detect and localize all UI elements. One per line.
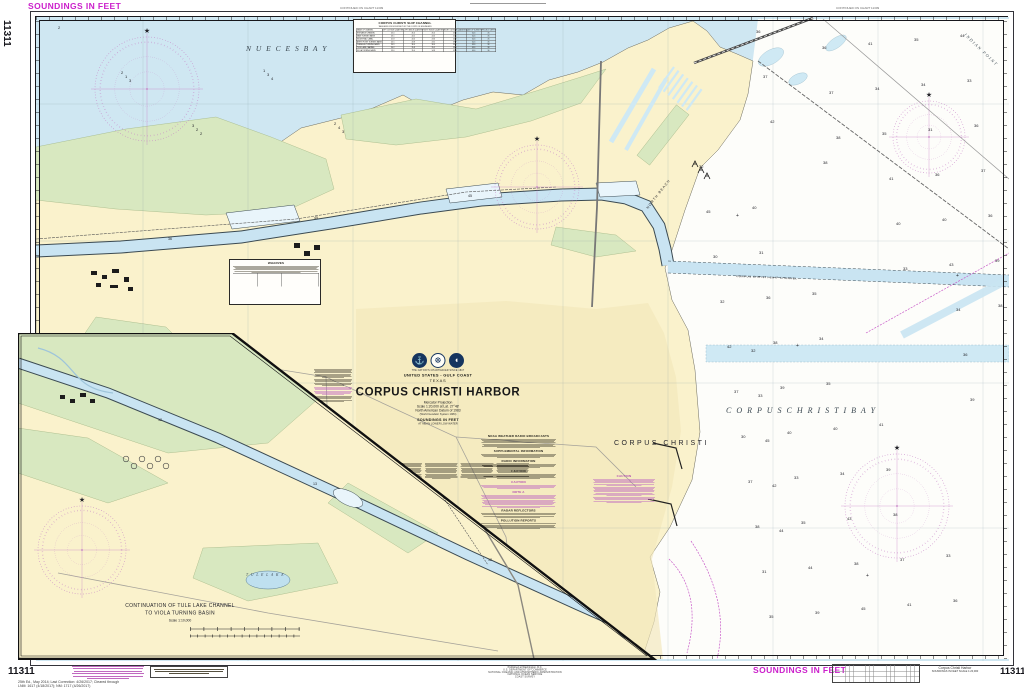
sounding-value: 33 [946,553,951,558]
sounding-value: 37 [829,90,834,95]
sounding-value: 36 [766,295,771,300]
sounding-value: 39 [886,467,891,472]
sounding-value: 44 [960,33,965,38]
sounding-value: 35 [801,520,806,525]
sounding-value: 35 [812,291,817,296]
tabulation-cell: VIOLA TURNING BASIN [356,49,382,52]
bottom-right-sub-line: SOUNDINGS IN FEET SCALE 1:20,000 [925,670,985,673]
sounding-value: 34 [840,471,845,476]
sounding-value: 31 [928,127,933,132]
svg-text:+: + [866,573,869,579]
inset-title-line1: CONTINUATION OF TULE LAKE CHANNEL [125,603,234,609]
chart-number-left-edge: 11311 [1,20,12,47]
wharves-table [233,273,319,287]
sounding-value: 41 [868,41,873,46]
nautical-chart-page: SOUNDINGS IN FEET 11311 CONTINUED ON CHA… [0,0,1024,690]
tule-lake-inset: ★ 121312 T U L E L A K E CONTINUATION OF… [18,333,658,660]
sounding-value: 12 [488,558,492,562]
sounding-value: 32 [699,164,704,169]
edition-line2: LNM: 1617 (4/18/2017); NM: 1717 (4/26/20… [18,684,154,688]
north-star-icon: ★ [894,444,900,452]
sounding-value: 30 [713,254,718,259]
sounding-value: 41 [879,422,884,427]
sounding-value: 38 [854,561,859,566]
sounding-value: 36 [988,213,993,218]
margin-magenta-note-text [72,666,144,679]
sounding-value: 38 [836,135,841,140]
wharves-title: WHARVES [233,262,319,265]
tabulation-subtitle: TABULATED FROM SURVEYS BY THE CORPS OF E… [356,26,454,28]
sounding-value: 35 [914,37,919,42]
sounding-value: 36 [935,172,940,177]
sounding-value: 39 [780,385,785,390]
chart-number-bottom-right: 11311 [1000,666,1024,677]
sounding-value: 39 [995,258,1000,263]
sounding-value: 31 [762,569,767,574]
north-star-icon: ★ [534,135,540,143]
tabulation-cell: 36 [481,49,496,52]
sounding-value: 34 [921,82,926,87]
sounding-value: 34 [875,86,880,91]
sounding-value: 37 [763,74,768,79]
sounding-value: 42 [770,119,775,124]
sounding-value: 38 [755,524,760,529]
tabulation-cell: 35.0 [404,49,423,52]
continued-note-right: CONTINUED ON CHART 11309 [836,6,879,10]
sounding-value: 33 [903,266,908,271]
sounding-value: 43 [949,262,954,267]
inset-title-line2: TO VIOLA TURNING BASIN [145,611,215,617]
continued-note-left: CONTINUED ON CHART 11309 [340,6,383,10]
sounding-value: 34 [819,336,824,341]
sounding-value: 13 [313,482,317,486]
wharves-note-box: WHARVES [229,259,321,305]
sounding-value: 36 [963,352,968,357]
sounding-value: 33 [758,393,763,398]
tabulation-cell: 33.6 [382,49,403,52]
sounding-value: 40 [787,430,792,435]
soundings-in-feet-top: SOUNDINGS IN FEET [28,1,121,11]
sounding-value: 31 [759,250,764,255]
sounding-value: 38 [773,340,778,345]
tule-lake-label: T U L E L A K E [246,573,285,577]
sounding-value: 44 [779,528,784,533]
inset-scale-label: Scale 1:10,000 [169,619,192,623]
sounding-value: 32 [720,299,725,304]
sounding-value: 38 [823,160,828,165]
bottom-right-chart-title: Corpus Christi Harbor SOUNDINGS IN FEET … [925,666,985,683]
sounding-value: 42 [727,344,732,349]
sounding-value: 38 [893,512,898,517]
tabulation-cell: 6-16 [466,49,481,52]
svg-text:+: + [796,343,799,349]
publisher-line: COAST SURVEY [455,676,595,678]
svg-text:+: + [956,273,959,279]
sounding-value: 37 [981,168,986,173]
unit-conversion-table [832,664,920,683]
sounding-value: 45 [314,216,318,220]
tabulation-row: VIOLA TURNING BASIN33.635.034.832.86-163… [356,49,496,52]
sounding-value: 36 [168,237,172,241]
sounding-value: 33 [967,78,972,83]
margin-magenta-note [72,666,144,680]
tabulation-cell: 32.8 [444,49,466,52]
edition-note: 25th Ed., May 2014; Last Correction: 4/2… [18,680,153,690]
sounding-value: 32 [751,348,756,353]
sounding-value: 41 [907,602,912,607]
tabulation-cell: 34.8 [423,49,444,52]
top-margin-fine-print [470,3,546,4]
sounding-value: 35 [769,614,774,619]
north-star-icon: ★ [79,496,85,504]
sounding-value: 45 [468,194,472,198]
corpus-christi-bay-label: C O R P U S C H R I S T I B A Y [726,406,877,415]
sounding-value: 36 [974,123,979,128]
sounding-value: 45 [765,438,770,443]
wharves-text [233,266,319,272]
publisher-block: Published at Washington, D.C. U.S. DEPAR… [455,666,595,690]
sounding-value: 42 [772,483,777,488]
chart-number-bottom-left: 11311 [8,666,35,677]
sounding-value: 37 [734,389,739,394]
north-star-icon: ★ [926,91,932,99]
sounding-value: 41 [889,176,894,181]
sounding-value: 37 [748,479,753,484]
margin-boxed-note [150,666,228,678]
sounding-value: 36 [822,45,827,50]
sounding-value: 40 [942,217,947,222]
sounding-value: 44 [808,565,813,570]
sounding-value: 40 [752,205,757,210]
sounding-value: 35 [826,381,831,386]
sounding-value: 36 [953,598,958,603]
margin-boxed-note-text [154,669,224,675]
sounding-value: 34 [956,307,961,312]
sounding-value: 40 [833,426,838,431]
sounding-value: 43 [847,516,852,521]
sounding-value: 45 [706,209,711,214]
sounding-value: 36 [756,29,761,34]
sounding-value: 30 [741,434,746,439]
sounding-value: 45 [861,606,866,611]
sounding-value: 39 [970,397,975,402]
tabulation-table: NAME OF CHANNEL LEFT OUTSIDE QUARTER LEF… [356,29,496,53]
sounding-value: 37 [900,557,905,562]
north-star-icon: ★ [144,27,150,35]
nueces-bay-label: N U E C E S B A Y [245,44,328,53]
channel-depth-tabulation: CORPUS CHRISTI SHIP CHANNEL TABULATED FR… [353,19,456,73]
sounding-value: 35 [882,131,887,136]
sounding-value: 40 [896,221,901,226]
svg-text:+: + [736,213,739,219]
sounding-value: 38 [998,303,1003,308]
sounding-value: 39 [815,610,820,615]
sounding-value: 12 [158,418,162,422]
sounding-value: 33 [794,475,799,480]
